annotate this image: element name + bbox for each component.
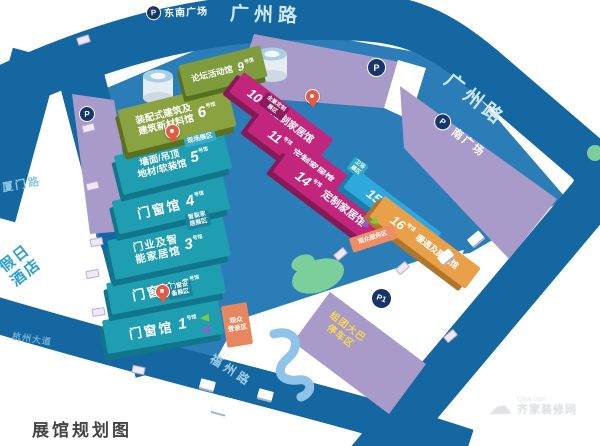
map-pin-icon xyxy=(155,284,170,299)
hall-5-number: 5号馆 xyxy=(189,146,211,165)
hall-9-number: 9号馆 xyxy=(236,57,256,73)
page-title: 展馆规划图 xyxy=(32,416,132,441)
exhibition-map: 广州路 广州路 厦门路 福州路 杭州大道 假日 酒店 P 东南广场 P P P … xyxy=(0,0,600,446)
hall-6-number: 6号馆 xyxy=(196,101,218,120)
hall-3-number: 3号馆 xyxy=(183,233,205,252)
hall-1-number: 1号馆 xyxy=(177,314,199,332)
parking-icon: P xyxy=(146,5,162,21)
arrow-left-icon xyxy=(200,314,210,323)
hall-11-number: 11号馆 xyxy=(266,127,293,152)
map-pin-icon xyxy=(305,89,320,104)
road-label-guangzhou-top: 广州路 xyxy=(230,0,303,28)
map-pin-icon xyxy=(165,124,180,139)
parking-icon: P xyxy=(79,106,95,122)
map-background xyxy=(0,0,600,446)
hall-4-number: 4号馆 xyxy=(184,190,206,209)
cloud-logo-icon: ☁ xyxy=(488,392,512,421)
arrow-left-icon xyxy=(201,326,211,335)
hall-14-number: 14号馆 xyxy=(293,168,323,195)
watermark: ☁ Qijia.com 齐家装修网 xyxy=(488,392,577,421)
parking-icon: P xyxy=(367,58,386,77)
